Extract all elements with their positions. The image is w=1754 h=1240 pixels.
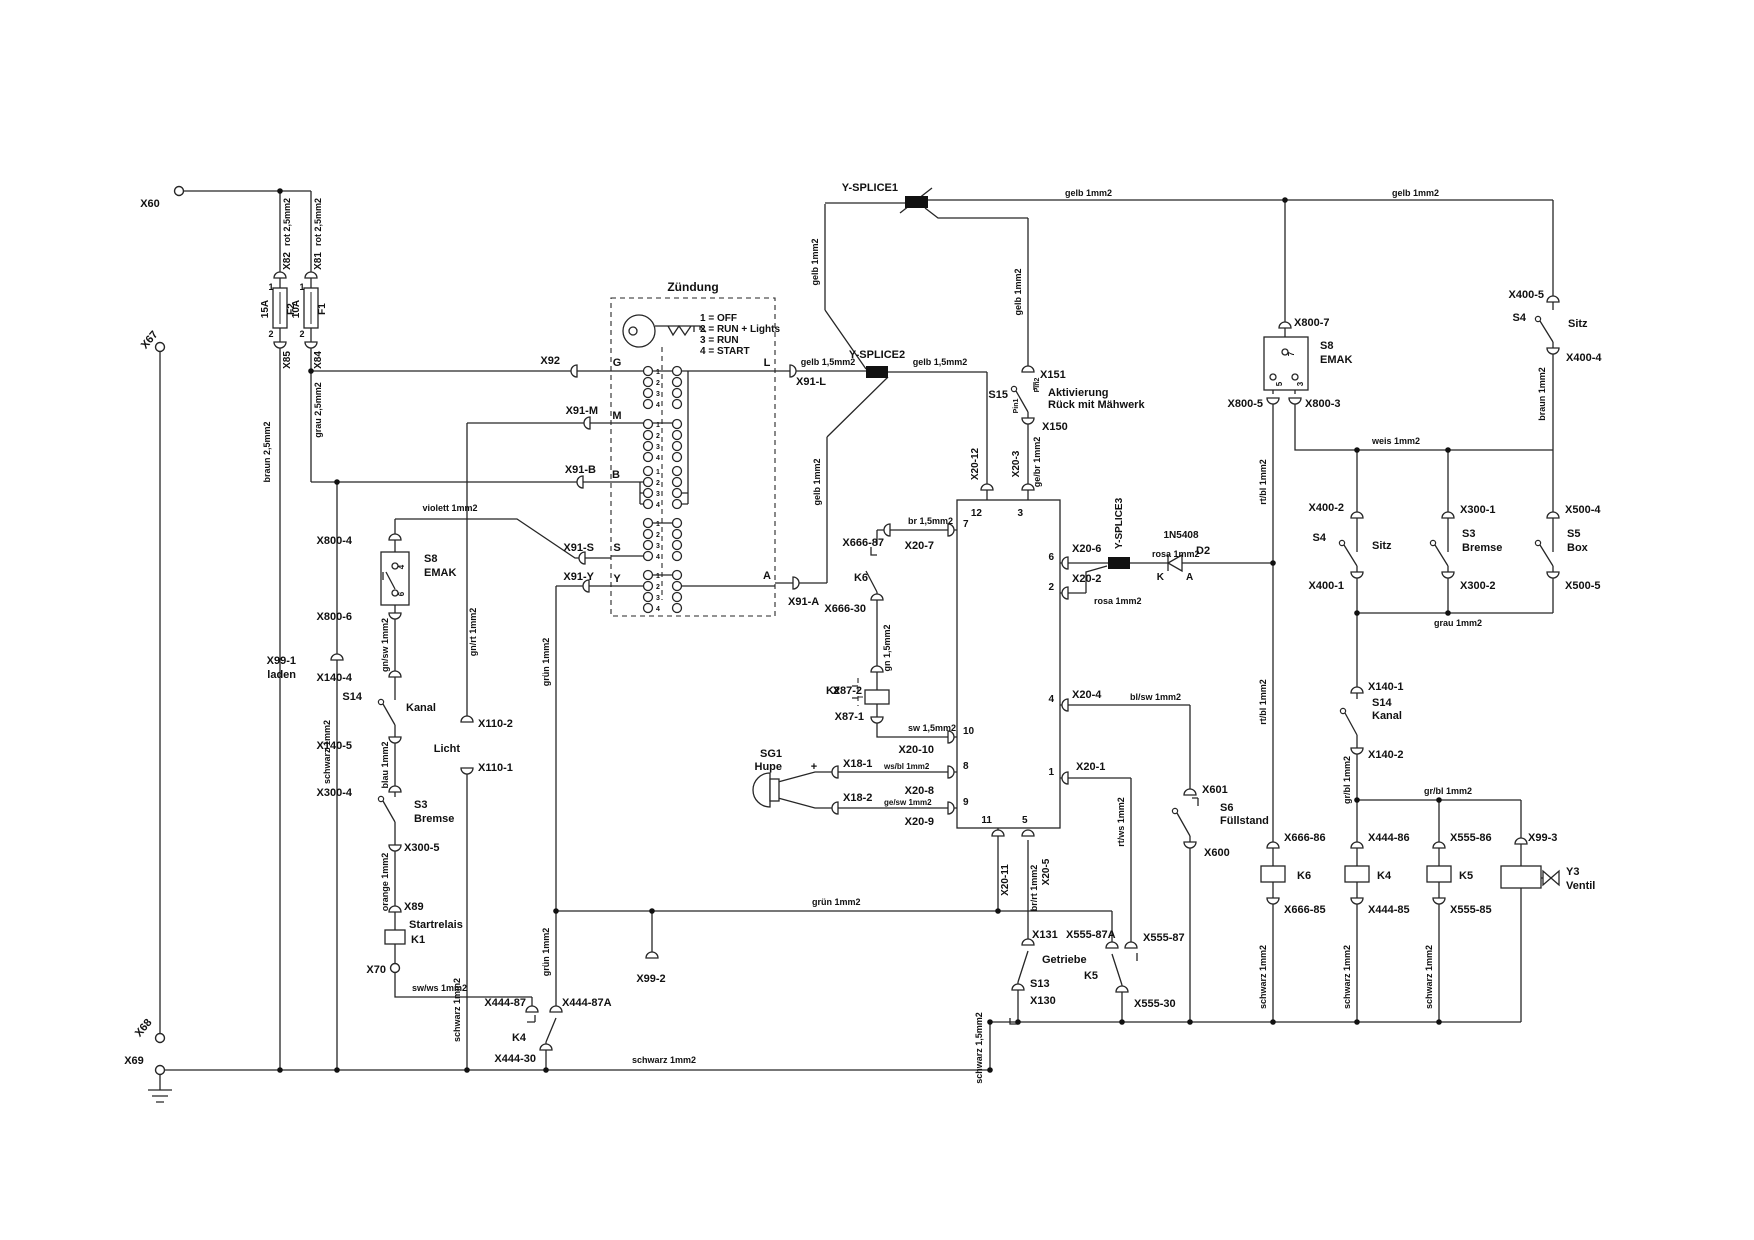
label-5: 5 [1022, 815, 1028, 826]
label-x444-30: X444-30 [494, 1053, 536, 1065]
switch-pivot [1535, 540, 1540, 545]
connector-arc-x110-2 [461, 716, 473, 722]
connector-arc-x555-87 [1125, 942, 1137, 948]
label-gr-bl-1mm2: gr/bl 1mm2 [1342, 756, 1352, 804]
label-x300-1: X300-1 [1460, 504, 1495, 516]
junction-dot [1445, 610, 1451, 616]
label-l: L [764, 357, 771, 369]
label-x400-2: X400-2 [1309, 502, 1344, 514]
label-x20-5: X20-5 [1041, 858, 1052, 885]
connector-arc-x140-5 [389, 737, 401, 743]
label-x69: X69 [124, 1055, 144, 1067]
label-x300-2: X300-2 [1460, 580, 1495, 592]
label-8: 8 [963, 761, 969, 772]
junction-dot [1282, 197, 1288, 203]
connector-arc-x99-2 [646, 952, 658, 958]
label-x91-l: X91-L [796, 376, 826, 388]
label-s3: S3 [414, 799, 427, 811]
relay-k2-coil [865, 690, 889, 704]
label-x60: X60 [140, 198, 160, 210]
junction-dot [1015, 1019, 1021, 1025]
label-3: 3 [656, 595, 660, 602]
label-orange-1mm2: orange 1mm2 [380, 853, 390, 912]
label-2: 2 [656, 380, 660, 387]
horn-speaker-icon [753, 773, 779, 807]
label-gn-1-5mm2: gn 1,5mm2 [882, 624, 892, 671]
ignition-contact-m-3 [644, 442, 653, 451]
net-gelb-top [775, 188, 1553, 583]
label-rot-2-5mm2: rot 2,5mm2 [282, 198, 292, 246]
label-schwarz-1mm2: schwarz 1mm2 [1424, 945, 1434, 1009]
label-2-run-lights: 2 = RUN + Lights [700, 324, 780, 335]
connector-arc-x400-5 [1547, 296, 1559, 302]
label-k4: K4 [1377, 870, 1392, 882]
connector-arc-x20-9 [948, 802, 954, 814]
label-x20-2: X20-2 [1072, 573, 1101, 585]
label-schwarz-1-5mm2: schwarz 1,5mm2 [974, 1012, 984, 1084]
label-x150: X150 [1042, 421, 1068, 433]
label-2: 2 [656, 584, 660, 591]
ignition-contact-m-3 [673, 442, 682, 451]
label-2: 2 [656, 532, 660, 539]
label-x444-85: X444-85 [1368, 904, 1410, 916]
connector-arc-x800-5 [1267, 398, 1279, 404]
label-bremse: Bremse [414, 813, 454, 825]
ignition-contact-s-3 [673, 541, 682, 550]
label-a: A [1186, 572, 1193, 583]
label-x300-4: X300-4 [317, 787, 353, 799]
ignition-contact-b-2 [644, 478, 653, 487]
label-rosa-1mm2: rosa 1mm2 [1094, 596, 1142, 606]
terminal-x70 [391, 964, 400, 973]
junction-dot [543, 1067, 549, 1073]
rail-1022 [990, 1022, 1521, 1070]
label-3: 3 [656, 391, 660, 398]
label-x68: X68 [133, 1017, 155, 1040]
label-1: 1 [656, 369, 660, 376]
label-s8: S8 [1320, 340, 1333, 352]
junction-dot [995, 908, 1001, 914]
terminal-x69 [156, 1066, 165, 1075]
y-splice1-icon [905, 196, 928, 208]
label-aktivierung: Aktivierung [1048, 387, 1109, 399]
label-blau-1mm2: blau 1mm2 [380, 741, 390, 788]
ignition-contact-s-2 [673, 530, 682, 539]
label-y: Y [613, 573, 621, 585]
connector-arc-x666-86 [1267, 842, 1279, 848]
junction-dot [1270, 560, 1276, 566]
label-rt-bl-1mm2: rt/bl 1mm2 [1258, 679, 1268, 725]
label-x91-s: X91-S [563, 542, 594, 554]
label-x18-2: X18-2 [843, 792, 872, 804]
junction-dot [1270, 1019, 1276, 1025]
label-x140-2: X140-2 [1368, 749, 1403, 761]
connector-arc-x800-7 [1279, 322, 1291, 328]
connector-arc-x555-86 [1433, 842, 1445, 848]
label-weis-1mm2: weis 1mm2 [1371, 436, 1420, 446]
junction-dot [1354, 447, 1360, 453]
relay-k1-coil [385, 930, 405, 944]
ignition-contact-m-4 [644, 453, 653, 462]
label-x800-3: X800-3 [1305, 398, 1340, 410]
label-1: 1 [268, 282, 273, 292]
ignition-internal [611, 371, 775, 586]
ignition-contact-b-1 [644, 467, 653, 476]
label-s14: S14 [342, 691, 362, 703]
connector-arc-x91-a [793, 577, 799, 589]
ignition-contact-m-2 [673, 431, 682, 440]
junction-dot [1119, 1019, 1125, 1025]
ignition-contact-b-3 [644, 489, 653, 498]
net-weis-braun [1295, 342, 1553, 552]
connector-arc-x91-b [577, 476, 583, 488]
label-2: 2 [1048, 582, 1054, 593]
ignition-contact-s-3 [644, 541, 653, 550]
label-x20-10: X20-10 [899, 744, 934, 756]
label-11: 11 [981, 815, 992, 826]
label-x444-87a: X444-87A [562, 997, 612, 1009]
junction-dot [1436, 1019, 1442, 1025]
connector-arc-x800-3 [1289, 398, 1301, 404]
connector-arc-x130 [1012, 984, 1024, 990]
label-gr-bl-1mm2: gr/bl 1mm2 [1424, 786, 1472, 796]
label-emak: EMAK [424, 567, 456, 579]
ignition-contact-y-4 [644, 604, 653, 613]
connector-arc-x20-8 [948, 766, 954, 778]
label-rosa-1mm2: rosa 1mm2 [1152, 549, 1200, 559]
label-x110-1: X110-1 [478, 762, 513, 774]
label-x20-6: X20-6 [1072, 543, 1101, 555]
label-y-splice2: Y-SPLICE2 [849, 349, 905, 361]
label-x444-86: X444-86 [1368, 832, 1410, 844]
label-gn-rt-1mm2: gn/rt 1mm2 [468, 608, 478, 657]
switch-pivot [1339, 540, 1344, 545]
label-1: 1 [656, 573, 660, 580]
s6-switch [1177, 798, 1198, 836]
connector-arc-x89 [389, 906, 401, 912]
label-laden: laden [267, 669, 296, 681]
switch-pivot [1011, 386, 1016, 391]
connector-arc-x81 [305, 272, 317, 278]
ignition-contact-g-3 [644, 389, 653, 398]
terminal-x68 [156, 1034, 165, 1043]
label-gelb-1-5mm2: gelb 1,5mm2 [801, 357, 856, 367]
label-s5: S5 [1567, 528, 1580, 540]
label-schwarz-1mm2: schwarz 1mm2 [452, 978, 462, 1042]
connector-arc-x20-1 [1062, 772, 1068, 784]
ignition-contact-b-4 [673, 500, 682, 509]
switch-pivot [1430, 540, 1435, 545]
label-5: 5 [1275, 381, 1284, 386]
connector-arc-x151 [1022, 366, 1034, 372]
label-emak: EMAK [1320, 354, 1352, 366]
label-1: 1 [656, 469, 660, 476]
connector-arc-x99-3 [1515, 838, 1527, 844]
label-3: 3 [1017, 508, 1023, 519]
label-x800-6: X800-6 [317, 611, 352, 623]
y-splice2-icon [866, 366, 888, 378]
connector-arc-x601 [1184, 789, 1196, 795]
label-br-rt-1mm2: br/rt 1mm2 [1029, 865, 1039, 912]
label-x400-1: X400-1 [1309, 580, 1344, 592]
label-x140-4: X140-4 [317, 672, 353, 684]
label-k4: K4 [512, 1032, 527, 1044]
label-y-splice1: Y-SPLICE1 [842, 182, 898, 194]
label-pin2: Pin2 [1034, 378, 1041, 393]
label-x400-4: X400-4 [1566, 352, 1602, 364]
label-sg1: SG1 [760, 748, 782, 760]
label-x555-85: X555-85 [1450, 904, 1492, 916]
ignition-contact-m-2 [644, 431, 653, 440]
label-kanal: Kanal [406, 702, 436, 714]
label-x800-7: X800-7 [1294, 317, 1329, 329]
label-10: 10 [963, 726, 975, 737]
connector-arc-x99-1 [331, 654, 343, 660]
label-x20-12: X20-12 [970, 447, 981, 480]
terminal-x67 [156, 343, 165, 352]
junction-dot [649, 908, 655, 914]
label-bremse: Bremse [1462, 542, 1502, 554]
label-x110-2: X110-2 [478, 718, 513, 730]
label-x555-87a: X555-87A [1066, 929, 1116, 941]
label-k1: K1 [411, 934, 425, 946]
label-x87-1: X87-1 [835, 711, 864, 723]
label-2: 2 [656, 480, 660, 487]
ignition-contact-b-1 [673, 467, 682, 476]
schematic-canvas: X60X67X68X69rot 2,5mm2X82115AF22X85braun… [0, 0, 1754, 1240]
label-x70: X70 [366, 964, 386, 976]
connector-arc-x555-85 [1433, 898, 1445, 904]
label-gelb-1-5mm2: gelb 1,5mm2 [913, 357, 968, 367]
switch-pivot [1535, 316, 1540, 321]
junction-dot [1354, 797, 1360, 803]
connector-arc-x555-87a [1106, 942, 1118, 948]
label-x99-2: X99-2 [636, 973, 665, 985]
label-x20-3: X20-3 [1011, 450, 1022, 477]
label-x800-5: X800-5 [1228, 398, 1263, 410]
label-10a: 10A [291, 300, 302, 318]
switch-pivot [1340, 708, 1345, 713]
label-ge-sw-1mm2: ge/sw 1mm2 [884, 798, 932, 807]
label-rt-ws-1mm2: rt/ws 1mm2 [1116, 797, 1126, 847]
label-1: 1 [1048, 767, 1054, 778]
label-x81: X81 [313, 252, 324, 270]
ignition-contact-b-3 [673, 489, 682, 498]
label-x20-1: X20-1 [1076, 761, 1105, 773]
junction-dot [1436, 797, 1442, 803]
label-gn-sw-1mm2: gn/sw 1mm2 [380, 618, 390, 672]
ignition-contact-g-1 [673, 367, 682, 376]
label-7: 7 [963, 519, 969, 530]
label-f-llstand: Füllstand [1220, 815, 1269, 827]
label-x91-a: X91-A [788, 596, 819, 608]
label-x300-5: X300-5 [404, 842, 439, 854]
label-startrelais: Startrelais [409, 919, 463, 931]
label-x666-87: X666-87 [842, 537, 884, 549]
connector-arc-x444-86 [1351, 842, 1363, 848]
connector-arc-x20-6 [1062, 557, 1068, 569]
ignition-contact-y-4 [673, 604, 682, 613]
label-bl-sw-1mm2: bl/sw 1mm2 [1130, 692, 1181, 702]
label-x601: X601 [1202, 784, 1228, 796]
junction-dot [277, 1067, 283, 1073]
label-x500-4: X500-4 [1565, 504, 1601, 516]
connector-arc-x444-87a [550, 1006, 562, 1012]
connector-arc-x18-2 [832, 802, 838, 814]
label-s15: S15 [988, 389, 1008, 401]
ignition-contact-g-2 [673, 378, 682, 387]
connector-arc-x500-4 [1547, 512, 1559, 518]
label-gelb-1mm2: gelb 1mm2 [810, 238, 820, 285]
label-txt: + [811, 761, 817, 773]
ignition-contact-b-4 [644, 500, 653, 509]
label-x99-1: X99-1 [267, 655, 296, 667]
label-s13: S13 [1030, 978, 1050, 990]
label-braun-2-5mm2: braun 2,5mm2 [262, 421, 272, 482]
ignition-contact-s-4 [644, 552, 653, 561]
label-3: 3 [656, 543, 660, 550]
label-s14: S14 [1372, 697, 1392, 709]
ignition-contact-s-2 [644, 530, 653, 539]
label-x151: X151 [1040, 369, 1066, 381]
label-gelb-1mm2: gelb 1mm2 [812, 458, 822, 505]
components [273, 196, 1559, 944]
label-m: M [612, 410, 621, 422]
net-k6-contact-k2 [852, 530, 957, 737]
label-x99-3: X99-3 [1528, 832, 1557, 844]
label-x20-7: X20-7 [905, 540, 934, 552]
label-x20-11: X20-11 [1000, 864, 1011, 896]
label-sitz: Sitz [1568, 318, 1588, 330]
label-schwarz-1mm2: schwarz 1mm2 [1342, 945, 1352, 1009]
label-s4: S4 [1513, 312, 1527, 324]
label-x444-87: X444-87 [484, 997, 526, 1009]
label-ws-bl-1mm2: ws/bl 1mm2 [883, 762, 930, 771]
label-d2: D2 [1196, 545, 1210, 557]
label-4: 4 [656, 606, 660, 613]
ignition-contact-y-3 [644, 593, 653, 602]
relay-k4-coil [1345, 866, 1369, 882]
label-gr-n-1mm2: grün 1mm2 [812, 897, 861, 907]
relay-k5-coil [1427, 866, 1451, 882]
label-y3: Y3 [1566, 866, 1579, 878]
label-gr-n-1mm2: grün 1mm2 [541, 638, 551, 687]
connector-arc-x444-87 [526, 1006, 538, 1012]
net-emak-right [1270, 332, 1295, 1022]
label-getriebe: Getriebe [1042, 954, 1087, 966]
label-rt-bl-1mm2: rt/bl 1mm2 [1258, 459, 1268, 505]
label-gelb-1mm2: gelb 1mm2 [1065, 188, 1112, 198]
connector-arc-x800-6 [389, 613, 401, 619]
label-x84: X84 [313, 351, 324, 369]
connector-arc-x555-30 [1116, 986, 1128, 992]
net-licht [467, 423, 611, 1070]
ignition-contact-y-2 [673, 582, 682, 591]
connector-arc-x666-30 [871, 594, 883, 600]
label-x20-8: X20-8 [905, 785, 934, 797]
connector-arc-x400-4 [1547, 348, 1559, 354]
connector-arc-x84 [305, 342, 317, 348]
junction-dot [1187, 1019, 1193, 1025]
wiring-diagram-page: X60X67X68X69rot 2,5mm2X82115AF22X85braun… [0, 0, 1754, 1240]
connector-arc-x666-87 [884, 524, 890, 536]
label-3: 3 [656, 444, 660, 451]
label-k5: K5 [1084, 970, 1098, 982]
ignition-contact-g-1 [644, 367, 653, 376]
ignition-contact-s-4 [673, 552, 682, 561]
label-br-1-5mm2: br 1,5mm2 [908, 516, 953, 526]
connector-arc-x85 [274, 342, 286, 348]
junction-dot [987, 1067, 993, 1073]
label-1n5408: 1N5408 [1163, 530, 1198, 541]
connector-arc-x140-4 [389, 671, 401, 677]
label-ge-br-1mm2: ge/br 1mm2 [1032, 437, 1042, 488]
ignition-contact-s-1 [673, 519, 682, 528]
connector-arc-x444-30 [540, 1044, 552, 1050]
connector-arc-x300-2 [1442, 572, 1454, 578]
controller-block [957, 500, 1060, 828]
connector-arc-x400-2 [1351, 512, 1363, 518]
label-3-run: 3 = RUN [700, 335, 739, 346]
label-k: K [1157, 572, 1165, 583]
label-x555-87: X555-87 [1143, 932, 1185, 944]
label-x91-b: X91-B [565, 464, 596, 476]
label-x800-4: X800-4 [317, 535, 353, 547]
label-x85: X85 [282, 351, 293, 369]
label-x140-5: X140-5 [317, 740, 352, 752]
label-x130: X130 [1030, 995, 1056, 1007]
label-12: 12 [971, 508, 983, 519]
label-gelb-1mm2: gelb 1mm2 [1392, 188, 1439, 198]
label-s6: S6 [1220, 802, 1233, 814]
label-6: 6 [1048, 552, 1054, 563]
ignition-contact-m-4 [673, 453, 682, 462]
label-3: 3 [656, 491, 660, 498]
label-x89: X89 [404, 901, 424, 913]
label-sitz: Sitz [1372, 540, 1392, 552]
label-x600: X600 [1204, 847, 1230, 859]
label-b: B [612, 469, 620, 481]
label-s3: S3 [1462, 528, 1475, 540]
switch-pivot [378, 796, 383, 801]
label-7: 7 [1287, 351, 1296, 356]
junction-dot [987, 1019, 993, 1025]
ignition-contact-m-1 [673, 420, 682, 429]
label-x91-m: X91-M [566, 405, 598, 417]
junction-dot [553, 908, 559, 914]
label-6: 6 [397, 591, 406, 596]
label-k2: K2 [826, 685, 840, 697]
label-x140-1: X140-1 [1368, 681, 1403, 693]
label-y-splice3: Y-SPLICE3 [1114, 497, 1125, 549]
label-x666-30: X666-30 [824, 603, 866, 615]
label-x91-y: X91-Y [563, 571, 594, 583]
label-grau-2-5mm2: grau 2,5mm2 [313, 382, 323, 438]
connector-arc-x300-1 [1442, 512, 1454, 518]
label-r-ck-mit-m-hwerk: Rück mit Mähwerk [1048, 399, 1145, 411]
connector-arc-x300-5 [389, 845, 401, 851]
connector-arc-x82 [274, 272, 286, 278]
label-1: 1 [299, 282, 304, 292]
ignition-contact-g-4 [673, 400, 682, 409]
label-schwarz-1mm2: schwarz 1mm2 [632, 1055, 696, 1065]
label-9: 9 [963, 797, 969, 808]
switch-pivot [378, 699, 383, 704]
ignition-contact-y-2 [644, 582, 653, 591]
connector-arc-x20-5 [1022, 830, 1034, 836]
label-4: 4 [656, 455, 660, 462]
connector-arc-x800-4 [389, 534, 401, 540]
